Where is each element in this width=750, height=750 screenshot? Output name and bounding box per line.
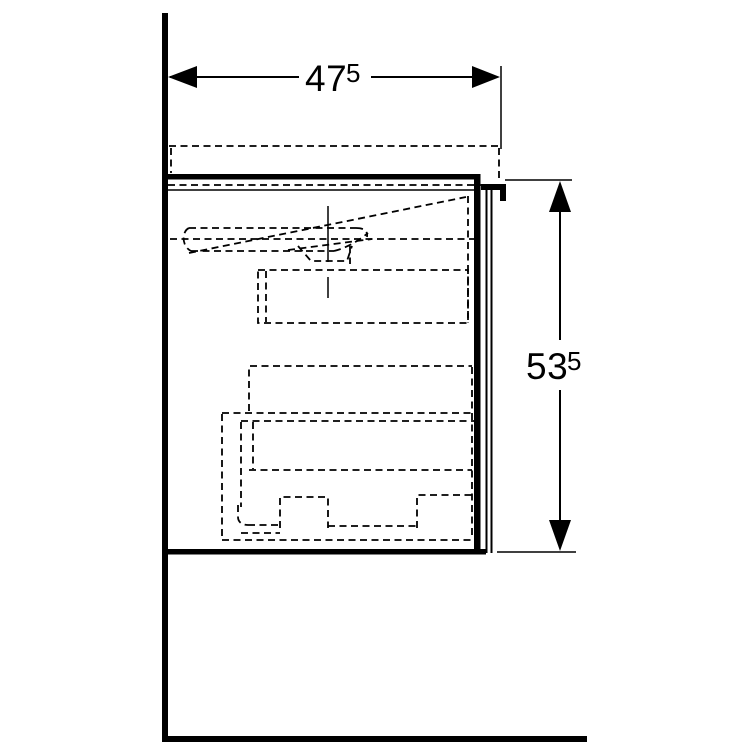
drain-trap-hidden-outline <box>298 246 352 264</box>
height-dim-label: 53 5 <box>526 346 581 387</box>
basin-bowl-hidden-outline <box>170 196 477 323</box>
cabinet-bottom-edge <box>165 549 486 555</box>
wall-line <box>162 13 168 742</box>
cabinet-front-edge <box>474 174 481 554</box>
drawer-recess-right <box>417 495 472 528</box>
cabinet-top-edge <box>165 174 480 180</box>
floor-line <box>162 736 587 742</box>
width-dim-arrow-left <box>168 66 197 88</box>
drawer-hidden-outline-lower <box>222 366 476 540</box>
width-dim-label: 47 5 <box>305 58 360 99</box>
width-dim-superscript: 5 <box>346 58 360 88</box>
technical-drawing-canvas: 47 5 53 5 <box>0 0 750 750</box>
cabinet-side-view-drawing: 47 5 53 5 <box>0 0 750 750</box>
siphon-cutout-hook <box>238 505 248 525</box>
width-dim-arrow-right <box>472 66 500 88</box>
height-dim-arrow-up <box>549 181 571 212</box>
cabinet-body-outline <box>165 174 506 555</box>
height-dim-value: 53 <box>526 346 568 387</box>
height-dim-superscript: 5 <box>567 346 581 376</box>
drawer-hidden-outline-middle <box>258 270 468 323</box>
drawer-recess-left <box>280 497 328 528</box>
width-dim-value: 47 <box>305 58 347 99</box>
height-dim-arrow-down <box>549 520 571 551</box>
handle-profile-hook <box>500 190 506 201</box>
